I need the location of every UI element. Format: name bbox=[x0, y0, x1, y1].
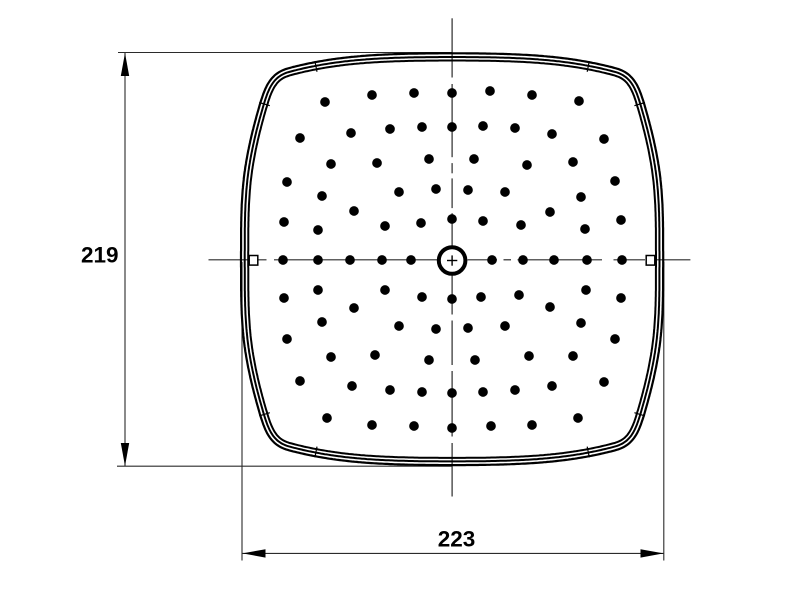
svg-text:219: 219 bbox=[81, 243, 119, 268]
svg-text:223: 223 bbox=[438, 527, 476, 552]
